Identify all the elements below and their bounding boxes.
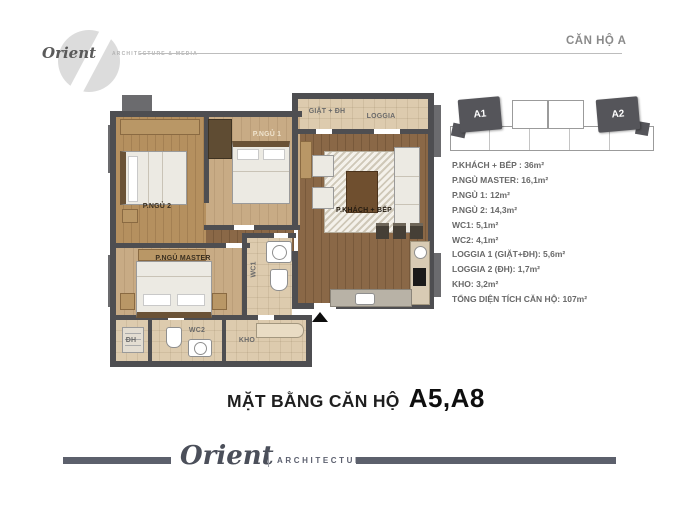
loggia-door-gap xyxy=(316,129,332,134)
building-key-plan: A1 A2 xyxy=(450,96,660,154)
pillow xyxy=(263,149,285,160)
label-dh: ĐH xyxy=(118,337,144,344)
footer-bar-right xyxy=(356,457,616,464)
footer-bar-left xyxy=(63,457,171,464)
spec-loggia-1: LOGGIA 1 (GIẶT+ĐH): 5,6m² xyxy=(452,247,676,262)
header-brand-name: Orient xyxy=(42,44,96,62)
kitchen-counter-horizontal xyxy=(330,289,412,307)
wall-strip-divider-1 xyxy=(148,319,152,365)
ac-grille xyxy=(125,345,141,346)
wall-loggia-bottom xyxy=(292,129,434,134)
kho-counter xyxy=(256,323,304,338)
armchair xyxy=(312,155,334,177)
spec-ngu-2: P.NGỦ 2: 14,3m² xyxy=(452,203,676,218)
wall-stub xyxy=(434,253,441,297)
wall-stub xyxy=(434,105,441,157)
wc1-door-gap xyxy=(274,233,288,238)
spec-kho: KHO: 3,2m² xyxy=(452,277,676,292)
wc1-basin xyxy=(272,245,287,260)
nightstand xyxy=(122,209,138,223)
duvet-fold xyxy=(148,152,149,204)
wc2-basin xyxy=(188,339,212,357)
duvet-fold xyxy=(162,152,163,204)
wall-outer-left xyxy=(110,111,116,367)
label-loggia: LOGGIA xyxy=(356,113,406,120)
sofa-cushion-line xyxy=(395,204,419,205)
wall-living-left-lower xyxy=(292,251,298,309)
spec-wc1: WC1: 5,1m² xyxy=(452,218,676,233)
plan-caption: MẶT BẰNG CĂN HỘ A5,A8 xyxy=(227,383,485,414)
keyplan-divider xyxy=(489,127,490,150)
nightstand xyxy=(120,293,135,310)
duvet-fold xyxy=(137,276,211,277)
label-wc2: WC2 xyxy=(182,327,212,334)
ac-grille xyxy=(125,333,141,334)
kho-door-gap xyxy=(258,315,274,320)
kitchen-sink xyxy=(414,246,427,259)
spec-wc2: WC2: 4,1m² xyxy=(452,233,676,248)
footer-brand-name: Orient xyxy=(180,441,274,471)
armchair xyxy=(312,187,334,209)
duvet-fold xyxy=(233,171,289,172)
wall-strip-divider-2 xyxy=(222,319,226,365)
wall-outer-bottom xyxy=(110,361,312,367)
keyplan-unit-a2: A2 xyxy=(596,96,641,133)
label-p-ngu-master: P.NGỦ MASTER xyxy=(144,255,222,262)
wall-strip-right xyxy=(306,315,312,367)
area-spec-list: P.KHÁCH + BẾP : 36m² P.NGỦ MASTER: 16,1m… xyxy=(452,158,676,307)
wardrobe-bedroom-1 xyxy=(208,119,232,159)
label-p-ngu-1: P.NGỦ 1 xyxy=(242,131,292,138)
label-p-ngu-2: P.NGỦ 2 xyxy=(132,203,182,210)
brochure-page: Orient ARCHITECTURE & MEDIA CĂN HỘ A A1 … xyxy=(0,0,678,510)
dining-chair xyxy=(410,223,423,239)
pillow xyxy=(128,156,138,202)
tv-cabinet xyxy=(300,141,312,179)
sofa-cushion-line xyxy=(395,176,419,177)
wc1-toilet xyxy=(270,269,288,291)
label-giat-dh: GIẶT + ĐH xyxy=(298,108,356,115)
keyplan-divider xyxy=(529,127,530,150)
bedroom1-door-gap xyxy=(234,225,254,230)
keyplan-divider xyxy=(569,127,570,150)
header-brand-tagline: ARCHITECTURE & MEDIA xyxy=(112,51,198,57)
page-title: CĂN HỘ A xyxy=(566,35,626,47)
entry-arrow-icon xyxy=(312,312,328,322)
spec-khach-bep: P.KHÁCH + BẾP : 36m² xyxy=(452,158,676,173)
prep-sink xyxy=(355,293,375,305)
pillow xyxy=(143,294,171,306)
spec-ngu-1: P.NGỦ 1: 12m² xyxy=(452,188,676,203)
label-wc1: WC1 xyxy=(251,264,258,278)
caption-prefix: MẶT BẰNG CĂN HỘ xyxy=(227,391,400,412)
bed-master xyxy=(136,261,212,318)
spec-total-area: TỔNG DIỆN TÍCH CĂN HỘ: 107m² xyxy=(452,292,676,307)
wall-wc1-left xyxy=(242,233,247,319)
label-kho: KHO xyxy=(232,337,262,344)
wc2-toilet xyxy=(166,327,182,348)
bed-bedroom-2 xyxy=(120,151,187,205)
floor-plan: GIẶT + ĐH LOGGIA P.NGỦ 1 P.NGỦ 2 P.NGỦ M… xyxy=(108,85,448,381)
pillow xyxy=(237,149,259,160)
keyplan-center-unit xyxy=(512,100,548,129)
nightstand xyxy=(212,293,227,310)
pillow xyxy=(177,294,205,306)
loggia-window-gap xyxy=(374,129,400,134)
spec-loggia-2: LOGGIA 2 (ĐH): 1,7m² xyxy=(452,262,676,277)
dining-chair xyxy=(376,223,389,239)
header-rule xyxy=(140,53,622,54)
wall-loggia-top xyxy=(292,93,434,99)
bed-bedroom-1 xyxy=(232,141,290,204)
kitchen-counter-vertical xyxy=(410,241,430,305)
dining-chair xyxy=(393,223,406,239)
footer-divider xyxy=(268,452,269,467)
wardrobe-bedroom-2 xyxy=(120,119,200,135)
keyplan-unit-a1: A1 xyxy=(458,96,503,133)
wc2-basin-bowl xyxy=(194,342,207,355)
stove xyxy=(413,268,426,286)
wc1-vanity xyxy=(266,241,292,263)
label-p-khach-bep: P.KHÁCH + BẾP xyxy=(324,207,404,214)
keyplan-center-unit xyxy=(548,100,584,129)
sofa xyxy=(394,147,420,233)
caption-unit-numbers: A5,A8 xyxy=(409,383,485,414)
spec-ngu-master: P.NGỦ MASTER: 16,1m² xyxy=(452,173,676,188)
